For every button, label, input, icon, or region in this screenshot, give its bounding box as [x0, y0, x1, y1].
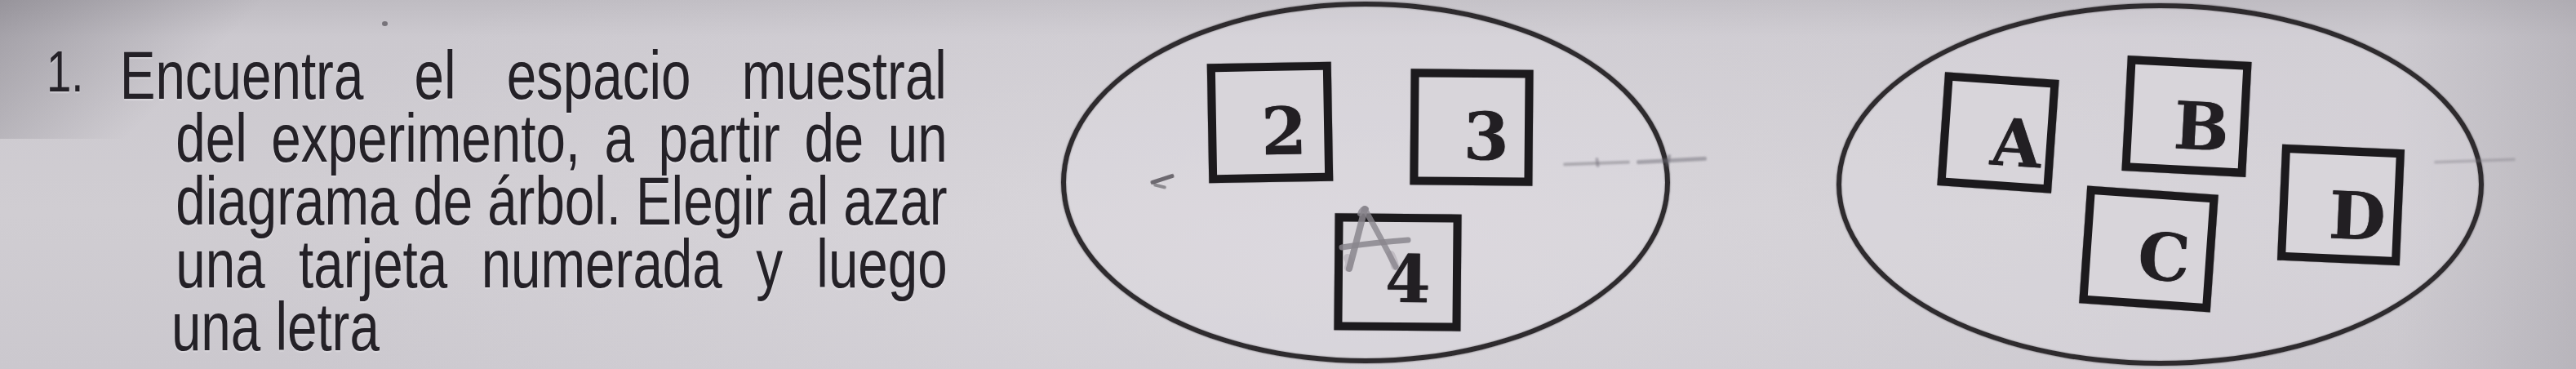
paper-speck [382, 21, 388, 26]
word: y [756, 233, 783, 296]
word: partir [659, 107, 780, 170]
word: experimento, [271, 107, 580, 170]
textbook-photo: 1. Encuentraelespaciomuestral delexperim… [0, 0, 2576, 369]
card-a-label: A [1988, 109, 2044, 178]
problem-statement: 1. Encuentraelespaciomuestral delexperim… [47, 44, 951, 358]
problem-text-line-5: una letra [171, 296, 951, 358]
card-2: 2 [1207, 62, 1334, 184]
problem-text-line-3: diagramadeárbol.Elegiralazar [175, 170, 947, 233]
word: un [888, 107, 948, 170]
word: azar [843, 170, 947, 233]
word: el [415, 44, 456, 107]
word: de [413, 170, 473, 233]
word: del [175, 107, 246, 170]
card-a: A [1937, 72, 2059, 193]
word: de [804, 107, 864, 170]
word: tarjeta [299, 233, 447, 296]
card-d-label: D [2328, 182, 2387, 250]
word: luego [816, 233, 947, 296]
word: Encuentra [120, 44, 364, 107]
word: una [175, 233, 264, 296]
word: numerada [482, 233, 722, 296]
word: árbol. [487, 170, 621, 233]
pencil-mark-a-icon [1337, 201, 1417, 276]
card-c: C [2079, 186, 2218, 313]
problem-number: 1. [47, 41, 84, 104]
card-b-label: B [2172, 92, 2231, 160]
problem-text-line-2: delexperimento,apartirdeun [175, 107, 947, 170]
word: al [787, 170, 828, 233]
card-2-label: 2 [1260, 98, 1307, 164]
card-d: D [2277, 144, 2405, 265]
word: a [605, 107, 634, 170]
card-b: B [2121, 56, 2251, 177]
word: muestral [742, 44, 947, 107]
card-c-label: C [2136, 223, 2192, 291]
word: diagrama [175, 170, 398, 233]
word: espacio [507, 44, 691, 107]
card-3-label: 3 [1463, 104, 1509, 169]
problem-text-line-4: unatarjetanumeradayluego [175, 233, 947, 296]
card-3: 3 [1410, 69, 1533, 185]
word: Elegir [636, 170, 773, 233]
problem-text-line-1: Encuentraelespaciomuestral [120, 44, 947, 107]
